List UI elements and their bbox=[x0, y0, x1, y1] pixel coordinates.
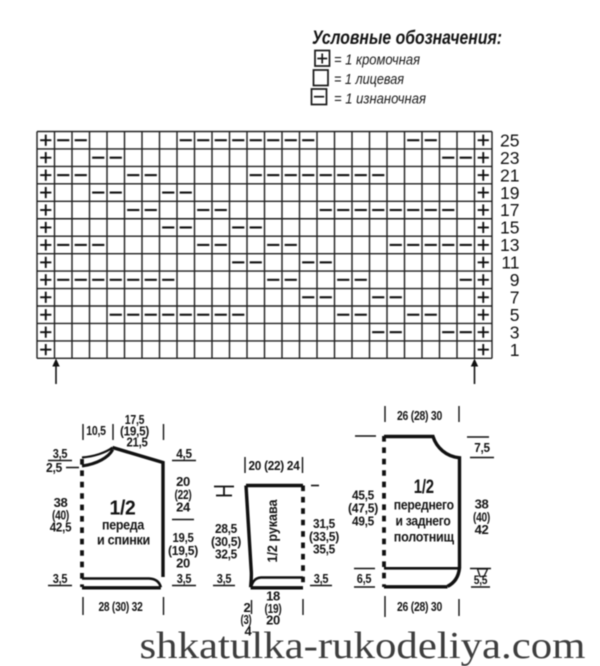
svg-text:= 1 кромочная: = 1 кромочная bbox=[334, 52, 420, 69]
svg-text:1/2: 1/2 bbox=[110, 498, 136, 520]
svg-text:20: 20 bbox=[176, 556, 190, 571]
svg-text:2,5: 2,5 bbox=[46, 460, 62, 475]
svg-text:1/2: 1/2 bbox=[414, 477, 434, 498]
svg-text:переда: переда bbox=[102, 518, 145, 533]
svg-text:Условные обозначения:: Условные обозначения: bbox=[312, 27, 502, 49]
svg-text:42,5: 42,5 bbox=[50, 520, 72, 535]
svg-text:7,5: 7,5 bbox=[474, 440, 490, 455]
svg-text:полотнищ: полотнищ bbox=[394, 530, 455, 545]
svg-text:= 1 изнаночная: = 1 изнаночная bbox=[334, 91, 426, 108]
svg-text:3,5: 3,5 bbox=[53, 571, 68, 586]
svg-text:42: 42 bbox=[475, 522, 489, 537]
svg-text:и заднего: и заднего bbox=[396, 514, 451, 529]
svg-text:3,5: 3,5 bbox=[314, 571, 329, 586]
svg-text:24: 24 bbox=[176, 500, 191, 515]
svg-text:20 (22) 24: 20 (22) 24 bbox=[249, 458, 301, 473]
svg-text:переднего: переднего bbox=[394, 498, 454, 513]
svg-text:21,5: 21,5 bbox=[127, 435, 148, 450]
svg-text:3,5: 3,5 bbox=[217, 571, 232, 586]
svg-text:1: 1 bbox=[510, 340, 520, 360]
svg-text:49,5: 49,5 bbox=[352, 514, 374, 529]
svg-text:10,5: 10,5 bbox=[86, 423, 106, 438]
svg-text:3,5: 3,5 bbox=[53, 446, 68, 461]
svg-text:shkatulka-rukodeliya.com: shkatulka-rukodeliya.com bbox=[140, 625, 586, 666]
svg-text:35,5: 35,5 bbox=[313, 542, 335, 557]
svg-text:3,5: 3,5 bbox=[177, 571, 192, 586]
svg-text:28 (30) 32: 28 (30) 32 bbox=[99, 599, 143, 614]
svg-text:26 (28) 30: 26 (28) 30 bbox=[397, 408, 442, 423]
svg-text:= 1 лицевая: = 1 лицевая bbox=[334, 71, 404, 88]
svg-text:32,5: 32,5 bbox=[215, 547, 237, 562]
svg-text:6,5: 6,5 bbox=[357, 571, 372, 586]
svg-text:5,5: 5,5 bbox=[474, 573, 488, 587]
svg-text:26 (28) 30: 26 (28) 30 bbox=[397, 599, 442, 614]
svg-text:и спинки: и спинки bbox=[97, 533, 150, 548]
svg-text:4,5: 4,5 bbox=[176, 446, 192, 461]
svg-text:1/2 рукава: 1/2 рукава bbox=[265, 499, 280, 562]
